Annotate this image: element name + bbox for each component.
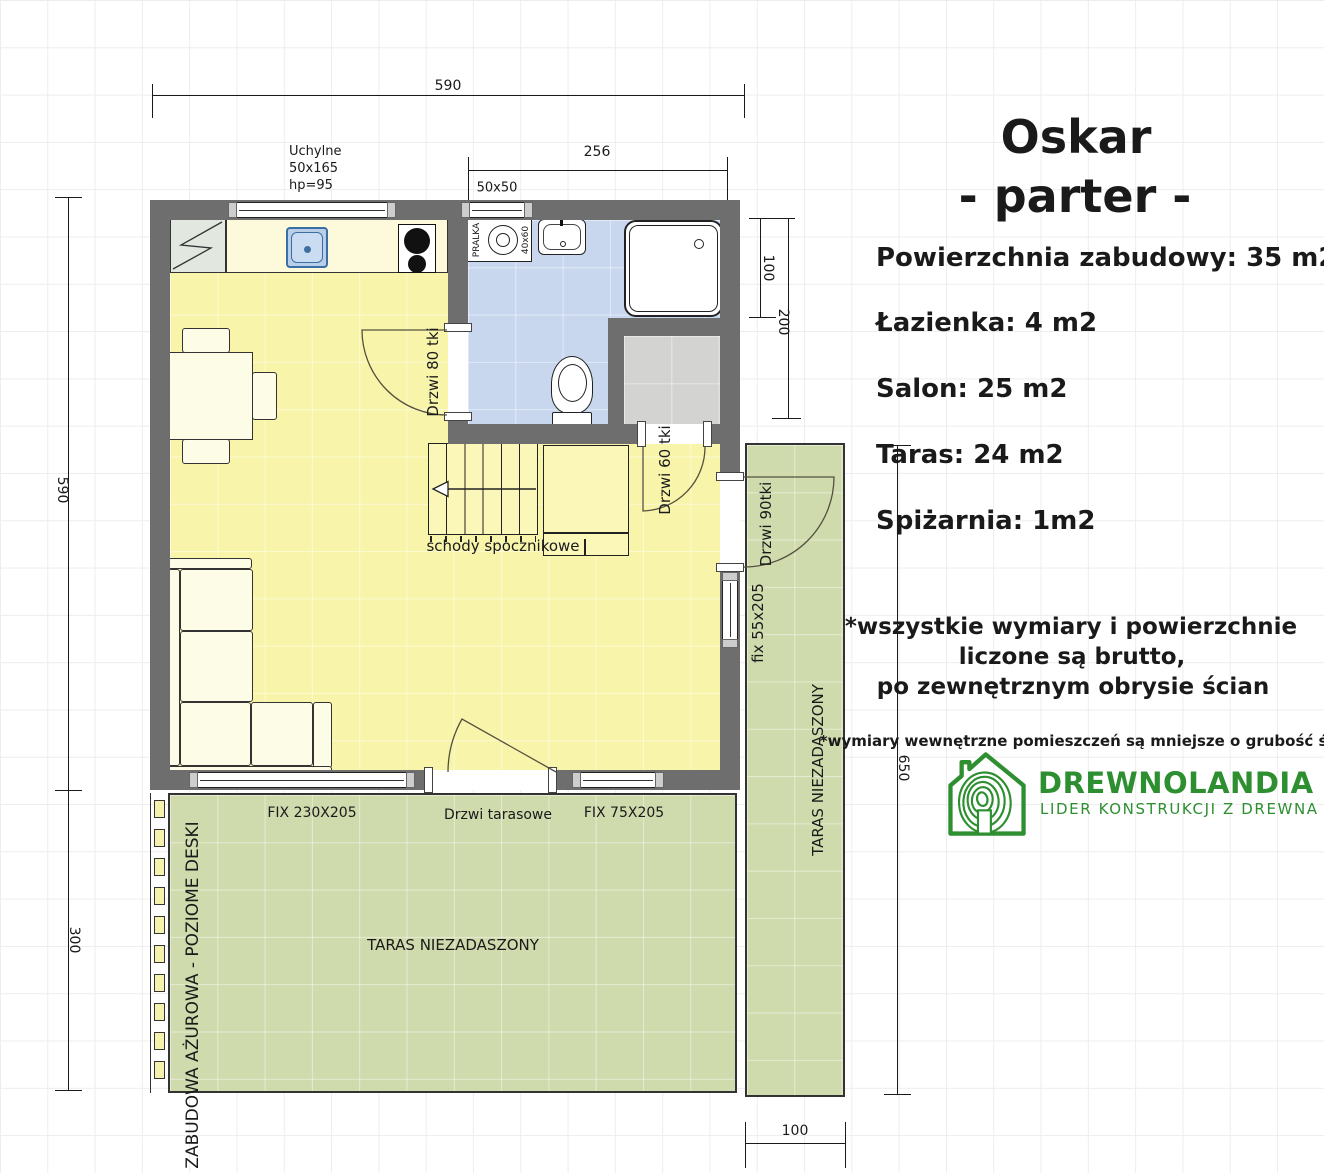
dim-tick <box>55 1090 82 1091</box>
window-cap <box>387 202 396 218</box>
sofa-cushion <box>251 702 313 766</box>
cladding-board <box>154 887 165 905</box>
door-opening-terrace <box>428 770 552 790</box>
cladding-strip <box>150 793 169 1093</box>
cladding-board <box>154 800 165 818</box>
stairs-lower-step-tick <box>584 539 586 556</box>
dim-tick <box>55 197 82 198</box>
cladding-board <box>154 858 165 876</box>
window-fix-230 <box>197 772 407 788</box>
toilet-bowl <box>558 364 587 402</box>
door-jamb <box>703 421 712 447</box>
sofa-cushion <box>180 702 251 766</box>
sofa-cushion <box>180 631 253 702</box>
shower-inner-rim <box>629 225 718 312</box>
window-tilt <box>236 202 388 218</box>
door-jamb <box>716 472 744 481</box>
kitchen-sink <box>286 227 328 268</box>
door-jamb <box>716 563 744 572</box>
wall-pantry-left <box>608 336 624 424</box>
dim-tick <box>749 218 795 219</box>
dim-tick <box>468 157 469 200</box>
window-fix-75 <box>580 772 656 788</box>
window-cap <box>461 202 470 218</box>
dim-tick <box>845 1122 846 1168</box>
door-jamb <box>548 767 557 793</box>
fridge <box>170 218 226 273</box>
chair <box>252 372 277 420</box>
area-item-bathroom: Łazienka: 4 m2 <box>876 308 1097 338</box>
stairs-landing <box>543 445 629 533</box>
door-opening-bath <box>448 331 468 413</box>
cladding-board <box>154 916 165 934</box>
window-50x50 <box>469 202 525 218</box>
floor-plan-page: 590 256 590 300 100 200 650 100 Uchylne … <box>0 0 1324 1173</box>
sofa-armrest-top <box>168 558 252 569</box>
shower-drain <box>694 239 704 249</box>
door-jamb <box>444 323 472 332</box>
window-cap <box>722 572 738 581</box>
area-item-salon: Salon: 25 m2 <box>876 374 1067 404</box>
window-fix-55 <box>722 580 738 640</box>
cladding-board <box>154 974 165 992</box>
area-item-total: Powierzchnia zabudowy: 35 m2 <box>876 243 1324 273</box>
washer-drum-inner <box>496 233 510 247</box>
cladding-board <box>154 1032 165 1050</box>
stairs-treads <box>428 443 538 535</box>
dim-bottom-line <box>745 1143 846 1144</box>
sofa-cushion <box>180 569 253 631</box>
shower <box>624 220 723 317</box>
dim-tick <box>884 1094 911 1095</box>
cladding-board <box>154 1003 165 1021</box>
window-cap <box>655 772 664 788</box>
sofa-armrest-right <box>313 702 332 768</box>
area-item-pantry: Spiżarnia: 1m2 <box>876 506 1095 536</box>
area-item-terrace: Taras: 24 m2 <box>876 440 1064 470</box>
stairs-landing-edge-dashed <box>628 445 629 533</box>
toilet <box>551 356 593 414</box>
door-jamb <box>424 767 433 793</box>
window-cap <box>722 639 738 648</box>
dim-top-line <box>152 95 745 96</box>
door-opening-side <box>720 477 740 566</box>
door-jamb <box>444 412 472 421</box>
door-jamb <box>637 421 646 447</box>
window-cap <box>524 202 533 218</box>
burner-small <box>408 255 426 273</box>
stove <box>398 224 436 273</box>
bathroom-sink-drain <box>560 241 566 247</box>
dim-tick <box>744 84 745 118</box>
dim-tick <box>745 1122 746 1168</box>
wall-bath-divider-upper <box>448 220 468 331</box>
dim-tick <box>152 84 153 118</box>
kitchen-sink-drain <box>304 246 311 253</box>
cladding-board <box>154 829 165 847</box>
window-cap <box>189 772 198 788</box>
burner-large <box>404 228 430 254</box>
window-cap <box>572 772 581 788</box>
logo-name: DREWNOLANDIA <box>1038 766 1314 800</box>
room-pantry <box>624 336 720 424</box>
door-opening-pantry <box>641 424 707 444</box>
window-tilt-label: Uchylne 50x165 hp=95 <box>289 143 341 194</box>
window-cap <box>228 202 237 218</box>
cladding-board <box>154 1061 165 1079</box>
dining-table <box>168 352 253 440</box>
window-cap <box>406 772 415 788</box>
chair <box>182 439 230 464</box>
dim-tick <box>772 418 801 419</box>
chair <box>182 328 230 353</box>
drewnolandia-house-logo-icon <box>941 750 1027 838</box>
cladding-board <box>154 945 165 963</box>
dim-tick <box>727 157 728 200</box>
wall-left <box>150 220 170 770</box>
dim-tick <box>749 317 776 318</box>
wall-pantry-top <box>608 318 740 336</box>
dim-bath-line <box>468 170 728 171</box>
logo-tagline: LIDER KONSTRUKCJI Z DREWNA <box>1040 800 1319 818</box>
